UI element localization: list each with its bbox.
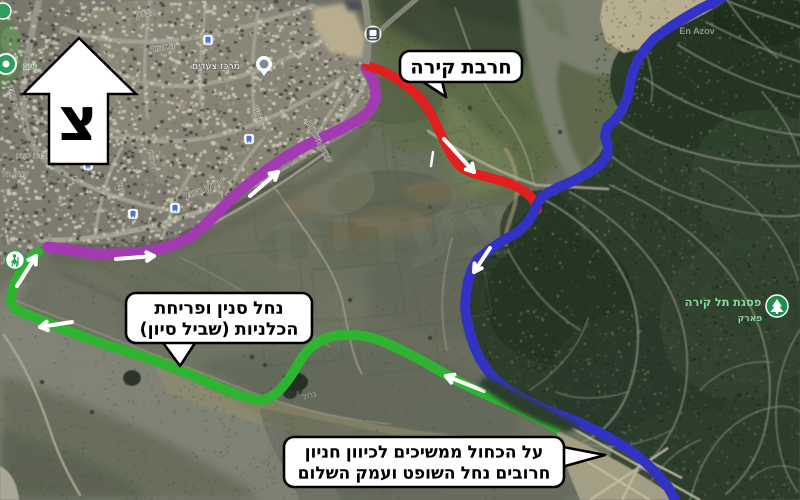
svg-text:En Azov: En Azov	[679, 26, 714, 36]
